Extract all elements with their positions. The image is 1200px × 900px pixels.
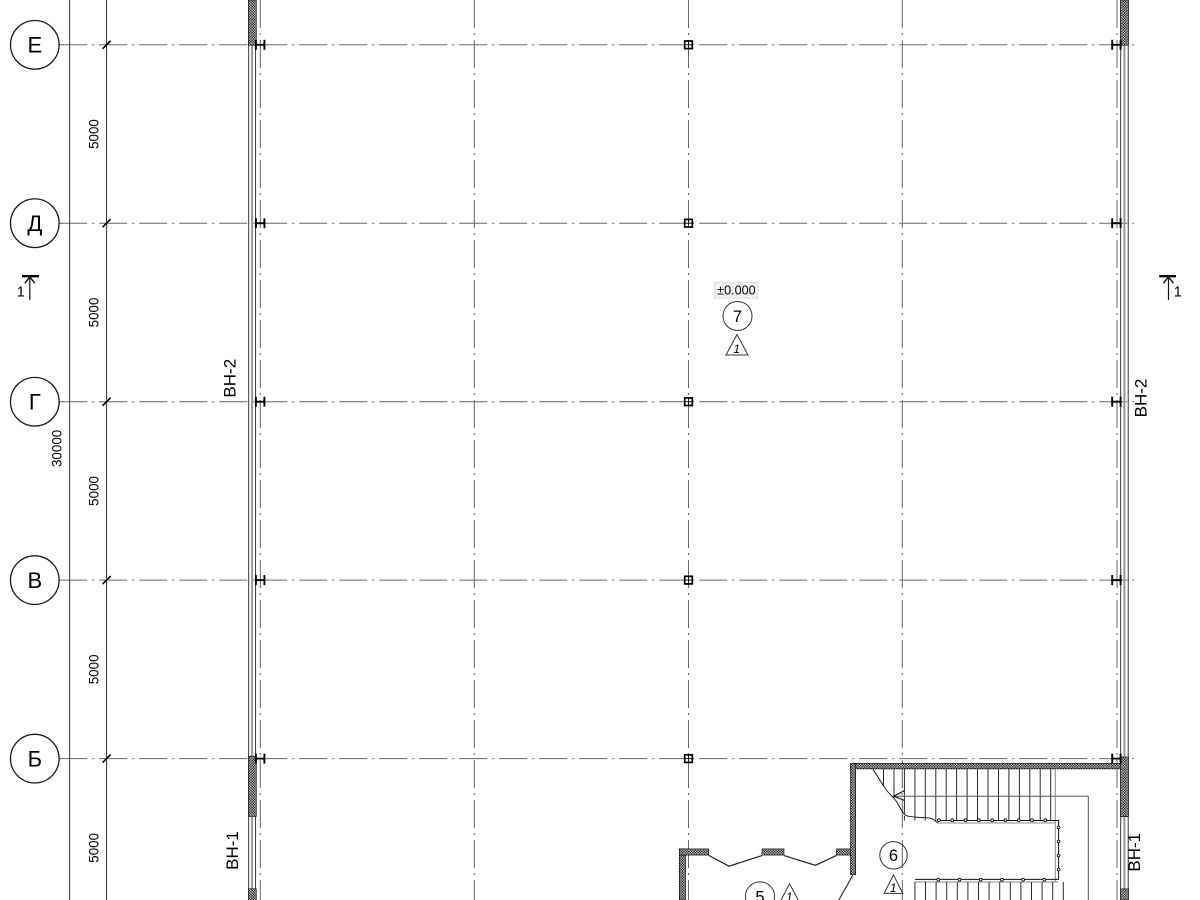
- svg-text:ВН-2: ВН-2: [221, 359, 240, 398]
- svg-text:ВН-2: ВН-2: [1132, 379, 1151, 418]
- svg-text:1: 1: [17, 285, 25, 301]
- svg-text:±0.000: ±0.000: [717, 284, 755, 298]
- svg-text:5000: 5000: [87, 298, 102, 328]
- svg-text:30000: 30000: [50, 430, 65, 467]
- svg-text:5000: 5000: [87, 833, 102, 863]
- svg-text:В: В: [27, 568, 42, 593]
- svg-text:5000: 5000: [87, 476, 102, 506]
- svg-text:5: 5: [755, 888, 764, 900]
- svg-text:Г: Г: [29, 390, 41, 415]
- svg-text:5000: 5000: [87, 119, 102, 149]
- svg-text:1: 1: [786, 890, 793, 900]
- svg-text:6: 6: [889, 847, 898, 865]
- svg-text:ВН-1: ВН-1: [223, 831, 242, 870]
- svg-text:7: 7: [733, 308, 742, 326]
- svg-text:1: 1: [890, 881, 897, 895]
- svg-text:ВН-1: ВН-1: [1125, 833, 1144, 872]
- svg-text:1: 1: [733, 342, 740, 356]
- svg-text:Е: Е: [27, 33, 42, 58]
- svg-text:1: 1: [1174, 284, 1182, 300]
- svg-text:Б: Б: [28, 747, 42, 772]
- svg-text:5000: 5000: [87, 654, 102, 684]
- svg-text:Д: Д: [27, 211, 42, 236]
